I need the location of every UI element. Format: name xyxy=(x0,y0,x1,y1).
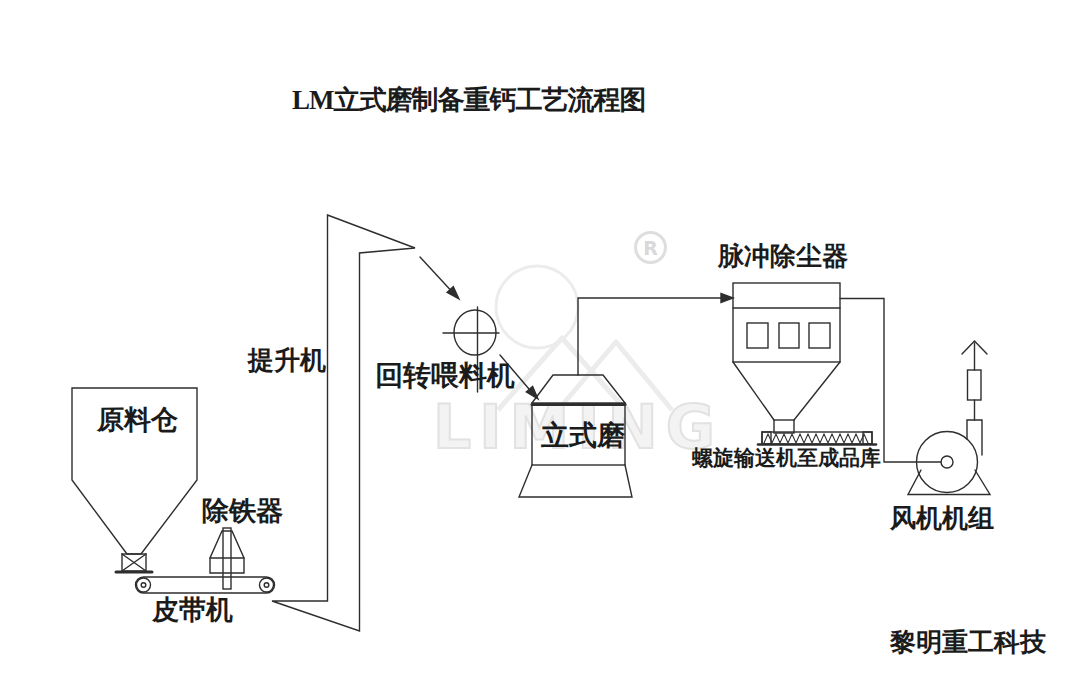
collector-window xyxy=(809,323,830,348)
pulse-dust-collector-shape xyxy=(733,283,840,433)
belt-conveyor-shape xyxy=(136,577,275,593)
label-fan-unit: 风机机组 xyxy=(890,505,994,534)
fan-pedestal xyxy=(908,470,990,495)
collector-window xyxy=(747,323,768,348)
duct-collector-to-fan xyxy=(840,299,941,463)
iron-remover-shape xyxy=(210,528,244,589)
fan-unit-shape xyxy=(908,341,990,495)
label-bucket-elevator: 提升机 xyxy=(248,347,326,376)
collector-window xyxy=(779,323,799,348)
duct-mill-to-collector xyxy=(578,294,733,376)
label-pulse-dust-collector: 脉冲除尘器 xyxy=(718,243,848,272)
label-rotary-feeder: 回转喂料机 xyxy=(375,361,515,392)
silo-discharge-valve-icon xyxy=(116,554,152,572)
label-iron-remover: 除铁器 xyxy=(202,497,283,527)
company-name: 黎明重工科技 xyxy=(890,629,1046,658)
screw-conveyor-shape xyxy=(758,432,876,445)
diagram-title: LM立式磨制备重钙工艺流程图 xyxy=(292,86,646,116)
label-vertical-mill: 立式磨 xyxy=(541,421,625,452)
label-raw-material-silo: 原料仓 xyxy=(97,406,178,436)
flow-arrow-elevator-to-feeder xyxy=(420,257,459,299)
label-screw-conveyor: 螺旋输送机至成品库 xyxy=(692,447,881,470)
label-belt-conveyor: 皮带机 xyxy=(152,596,233,626)
bucket-elevator-shape xyxy=(272,215,415,631)
process-flow-diagram: LIMING R xyxy=(0,0,1080,698)
fan-silencer xyxy=(968,370,982,400)
